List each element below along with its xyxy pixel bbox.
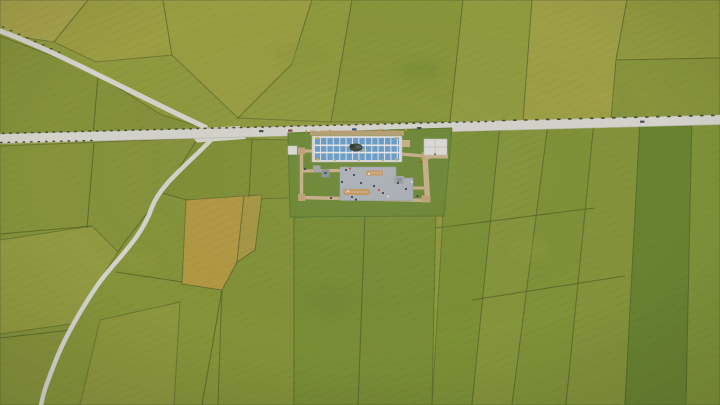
aerial-photo (0, 0, 720, 405)
aerial-farmland-scene (0, 0, 720, 405)
vignette-overlay (0, 0, 720, 405)
